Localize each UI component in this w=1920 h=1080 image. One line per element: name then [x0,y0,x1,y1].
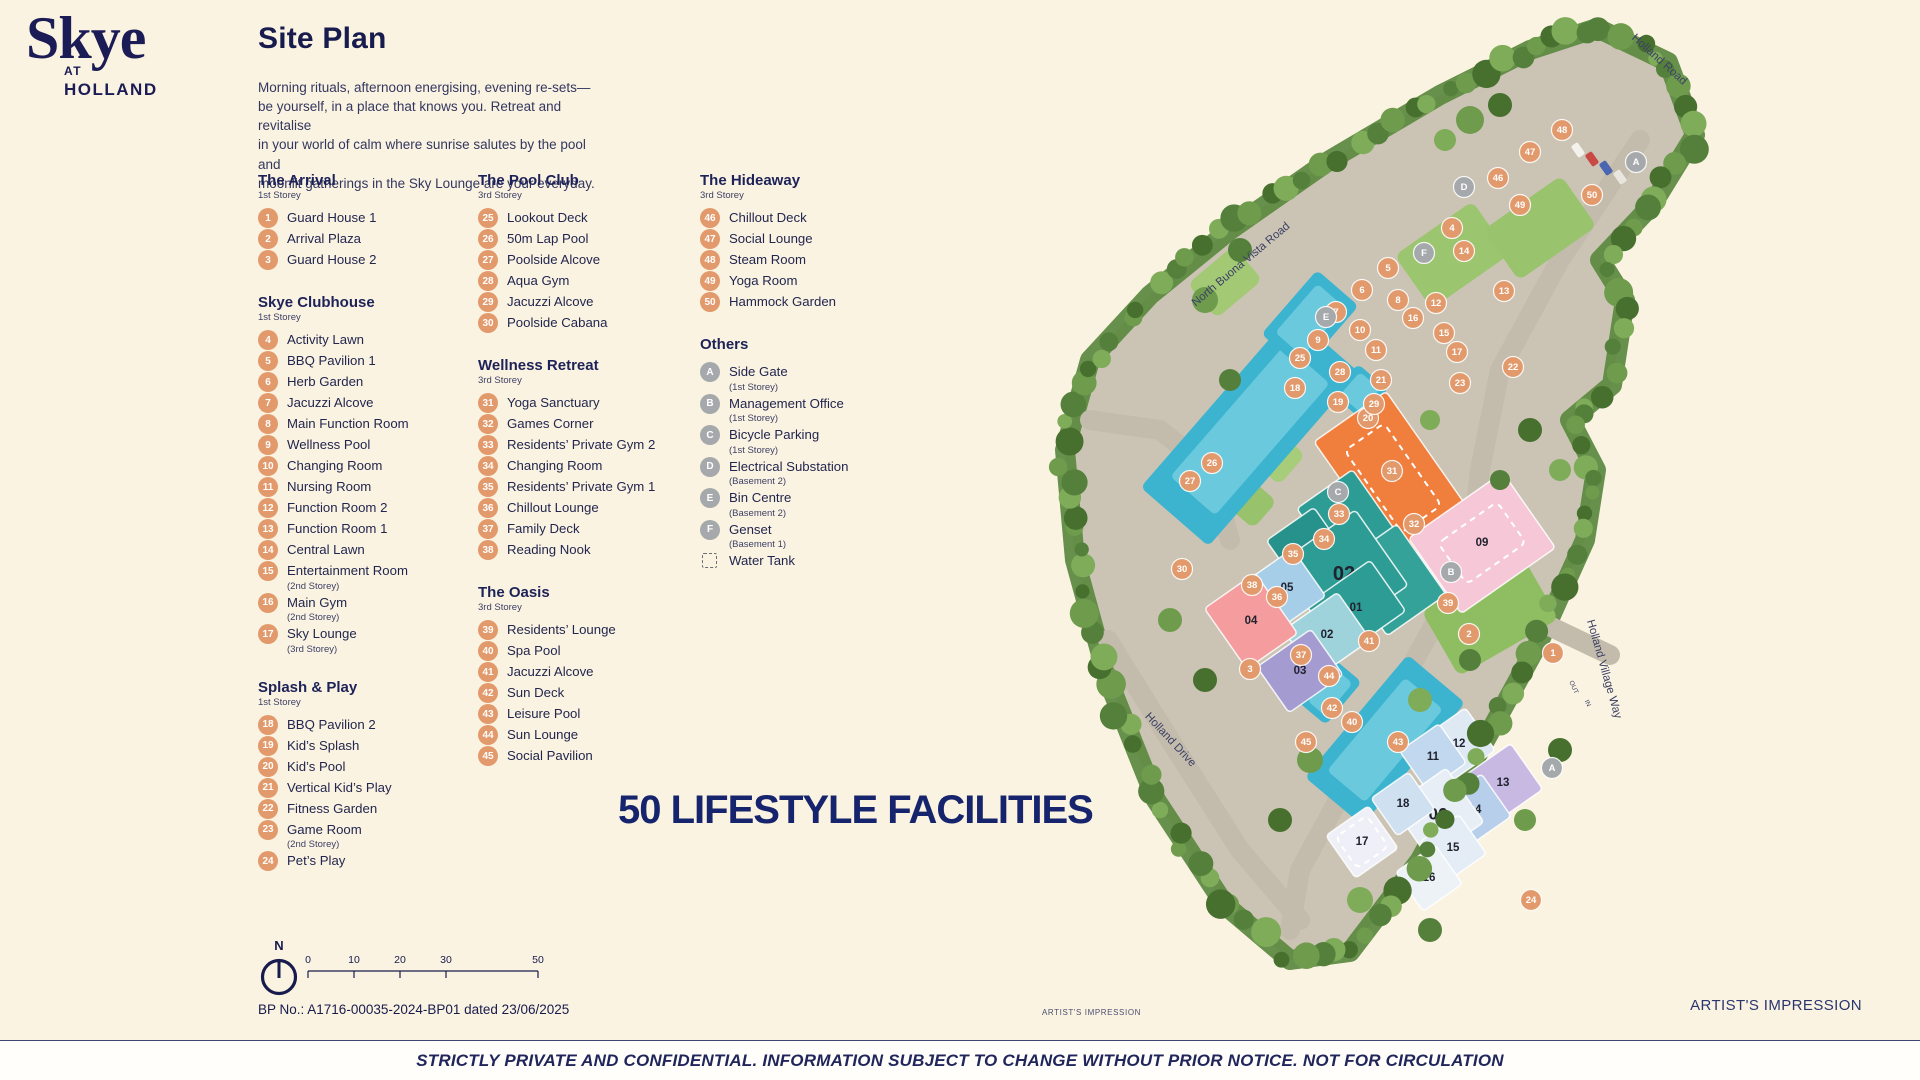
legend-item-label: Jacuzzi Alcove [507,295,594,310]
svg-text:13: 13 [1499,286,1510,297]
legend-item-label: Reading Nook [507,543,591,558]
svg-text:47: 47 [1525,147,1536,158]
legend-marker-badge: 23 [258,820,278,840]
tree [1490,470,1510,490]
tree [1577,22,1598,43]
legend-item-label: Electrical Substation [729,460,848,475]
legend-item: 43Leisure Pool [478,704,692,724]
svg-text:F: F [1421,248,1427,259]
site-marker-number: 14 [1454,241,1475,262]
tree [1577,506,1592,521]
tree [1423,822,1438,837]
tree [1434,129,1456,151]
tree [1467,720,1494,747]
legend-item-label: Entertainment Room [287,564,408,579]
tree [1511,662,1533,684]
legend-item: 16Main Gym(2nd Storey) [258,593,472,624]
svg-text:45: 45 [1301,737,1312,748]
site-marker-number: 23 [1450,373,1471,394]
legend-item: 6Herb Garden [258,372,472,392]
legend-item: 44Sun Lounge [478,725,692,745]
svg-text:33: 33 [1334,509,1345,520]
legend-item: 41Jacuzzi Alcove [478,662,692,682]
svg-text:25: 25 [1295,353,1306,364]
legend-item: 18BBQ Pavilion 2 [258,715,472,735]
tree [1049,458,1067,476]
legend-item-note: (3rd Storey) [287,644,357,655]
site-marker-number: 29 [1364,394,1385,415]
legend-marker-badge: B [700,394,720,414]
tree [1099,332,1118,351]
svg-text:32: 32 [1409,519,1420,530]
legend-section-storey: 3rd Storey [478,190,692,201]
building-label: 11 [1427,751,1440,763]
legend-marker-badge: E [700,488,720,508]
legend-item-note: (1st Storey) [729,413,844,424]
legend-item-label: Herb Garden [287,375,363,390]
brand-wordmark: Skye [26,8,158,68]
legend-item-label: Spa Pool [507,644,561,659]
site-marker-number: 37 [1291,645,1312,666]
site-marker-number: 31 [1382,461,1403,482]
legend-item-label: Changing Room [287,459,382,474]
svg-text:31: 31 [1387,466,1398,477]
svg-text:28: 28 [1335,367,1346,378]
north-label: N [256,938,302,953]
tree [1551,17,1579,45]
site-marker-number: 30 [1172,559,1193,580]
site-marker-number: 39 [1438,593,1459,614]
tree [1419,842,1435,858]
legend-marker-badge: 11 [258,477,278,497]
legend-item: 36Chillout Lounge [478,498,692,518]
legend-item: 37Family Deck [478,519,692,539]
svg-text:21: 21 [1376,375,1387,386]
confidential-text: STRICTLY PRIVATE AND CONFIDENTIAL. INFOR… [416,1051,1503,1071]
confidential-banner: STRICTLY PRIVATE AND CONFIDENTIAL. INFOR… [0,1040,1920,1080]
legend-item: 17Sky Lounge(3rd Storey) [258,624,472,655]
legend-marker-badge: 33 [478,435,498,455]
legend-item: 46Chillout Deck [700,208,914,228]
legend-item: EBin Centre(Basement 2) [700,488,914,519]
legend-marker-badge: A [700,362,720,382]
legend-item-label: Yoga Sanctuary [507,396,600,411]
svg-text:5: 5 [1385,263,1391,274]
legend-marker-badge: 28 [478,271,498,291]
legend-item-label: Poolside Alcove [507,253,600,268]
road-label: IN [1583,699,1592,708]
legend-item: CBicycle Parking(1st Storey) [700,425,914,456]
svg-text:29: 29 [1369,399,1380,410]
site-marker-letter: A [1542,758,1563,779]
svg-text:2: 2 [1466,629,1471,640]
tree [1193,668,1217,692]
legend-item: 33Residents’ Private Gym 2 [478,435,692,455]
legend-marker-badge: 48 [700,250,720,270]
legend-item-label: Sky Lounge [287,627,357,642]
legend-section-storey: 1st Storey [258,190,472,201]
legend-marker-badge: 29 [478,292,498,312]
building-label: 17 [1356,836,1369,848]
legend-item: FGenset(Basement 1) [700,520,914,551]
legend-item: 23Game Room(2nd Storey) [258,820,472,851]
legend-marker-badge: 1 [258,208,278,228]
svg-text:46: 46 [1493,173,1504,184]
tree [1171,841,1186,856]
legend-item: 25Lookout Deck [478,208,692,228]
tree [1566,416,1585,435]
site-marker-number: 50 [1582,185,1603,206]
legend-section-title: Skye Clubhouse [258,294,472,311]
tree [1175,248,1194,267]
tree [1369,904,1392,927]
legend-marker-badge: 42 [478,683,498,703]
svg-text:19: 19 [1333,397,1344,408]
tree [1551,573,1578,600]
legend-item: 19Kid’s Splash [258,736,472,756]
tree [1268,808,1292,832]
legend-item: Water Tank [700,551,914,571]
svg-text:37: 37 [1296,650,1307,661]
tree [1604,245,1623,264]
tree [1418,918,1442,942]
legend-section-title: The Oasis [478,584,692,601]
legend-item-label: Jacuzzi Alcove [507,665,594,680]
legend-item: 45Social Pavilion [478,746,692,766]
legend-marker-badge: 6 [258,372,278,392]
svg-text:C: C [1335,487,1342,498]
tree [1407,856,1432,881]
svg-text:10: 10 [348,954,360,966]
svg-text:48: 48 [1557,125,1568,136]
svg-text:E: E [1323,312,1329,323]
tree [1518,418,1542,442]
legend-item: DElectrical Substation(Basement 2) [700,457,914,488]
legend-item-label: Residents’ Private Gym 1 [507,480,655,495]
legend-section-storey: 3rd Storey [700,190,914,201]
legend-item: 4Activity Lawn [258,330,472,350]
legend-section-title: The Arrival [258,172,472,189]
tree [1549,459,1571,481]
svg-text:A: A [1549,763,1556,774]
site-marker-number: 38 [1242,575,1263,596]
site-marker-number: 35 [1283,544,1304,565]
site-marker-number: 8 [1388,290,1409,311]
tree [1206,889,1235,918]
legend-item-label: Arrival Plaza [287,232,361,247]
legend-item-label: Main Function Room [287,417,409,432]
tree [1572,436,1590,454]
legend-marker-badge: 22 [258,799,278,819]
site-marker-number: 12 [1426,293,1447,314]
legend-item-label: Leisure Pool [507,707,580,722]
legend-marker-badge: 16 [258,593,278,613]
legend-item-label: Residents’ Lounge [507,623,616,638]
site-marker-letter: C [1328,482,1349,503]
tree [1251,917,1281,947]
legend-item-note: (Basement 2) [729,476,848,487]
legend-item-label: Chillout Lounge [507,501,599,516]
tree [1443,779,1466,802]
legend-item-label: Changing Room [507,459,602,474]
legend-item: 20Kid’s Pool [258,757,472,777]
legend-item: 24Pet’s Play [258,851,472,871]
legend-item-label: Function Room 2 [287,501,387,516]
svg-text:16: 16 [1408,313,1419,324]
legend-section: Skye Clubhouse1st Storey4Activity Lawn5B… [258,294,472,655]
svg-text:15: 15 [1439,328,1450,339]
legend-item-label: Bicycle Parking [729,428,819,443]
site-marker-number: 17 [1447,342,1468,363]
site-marker-number: 22 [1503,357,1524,378]
tree [1650,166,1672,188]
legend-marker-badge: 13 [258,519,278,539]
tree [1127,302,1143,318]
legend-marker-badge: 45 [478,746,498,766]
tree [1274,952,1290,968]
site-marker-number: 9 [1308,330,1329,351]
svg-text:D: D [1461,182,1468,193]
legend-marker-badge: 12 [258,498,278,518]
scale-bar: 010203050 [300,952,550,984]
legend-marker-badge: 26 [478,229,498,249]
site-marker-number: 47 [1520,142,1541,163]
legend-item: 22Fitness Garden [258,799,472,819]
legend-item-label: Side Gate [729,365,788,380]
svg-text:3: 3 [1247,664,1252,675]
legend-item: 12Function Room 2 [258,498,472,518]
svg-text:22: 22 [1508,362,1519,373]
svg-text:14: 14 [1459,246,1470,257]
tree [1467,748,1484,765]
legend-item-label: Management Office [729,397,844,412]
legend-item-label: Hammock Garden [729,295,836,310]
legend-item-label: Social Pavilion [507,749,593,764]
legend-marker-badge: C [700,425,720,445]
legend-item-label: Bin Centre [729,491,791,506]
site-plan-map: 0809070610020102050403121113140618151716… [1030,0,1920,1040]
site-marker-number: 40 [1342,712,1363,733]
tree [1408,688,1432,712]
legend-marker-badge: 30 [478,313,498,333]
legend-item-label: Chillout Deck [729,211,807,226]
legend-item-note: (2nd Storey) [287,581,408,592]
legend-marker-badge: 41 [478,662,498,682]
tree [1093,350,1111,368]
tree [1567,545,1587,565]
legend-marker-badge: 15 [258,561,278,581]
svg-text:24: 24 [1526,895,1537,906]
legend-section: Wellness Retreat3rd Storey31Yoga Sanctua… [478,357,692,560]
legend-marker-badge: D [700,457,720,477]
legend-marker-badge: 49 [700,271,720,291]
legend-item: 2650m Lap Pool [478,229,692,249]
svg-text:36: 36 [1272,592,1283,603]
legend-item-label: Activity Lawn [287,333,364,348]
building-label: 09 [1476,537,1489,549]
site-marker-number: 42 [1322,698,1343,719]
legend-item: 29Jacuzzi Alcove [478,292,692,312]
legend-item: 7Jacuzzi Alcove [258,393,472,413]
tree [1489,45,1516,72]
site-marker-letter: D [1454,177,1475,198]
site-marker-number: 1 [1543,643,1564,664]
legend-item-label: Water Tank [729,554,795,569]
tree [1237,201,1261,225]
site-marker-number: 2 [1459,624,1480,645]
legend-section-storey: 3rd Storey [478,375,692,386]
tree [1420,410,1440,430]
site-marker-number: 32 [1404,514,1425,535]
site-marker-number: 19 [1328,392,1349,413]
building-label: 02 [1321,629,1334,641]
building-label: 15 [1447,842,1460,854]
legend-item-label: Main Gym [287,596,347,611]
legend-marker-badge: 44 [478,725,498,745]
legend-item-label: Lookout Deck [507,211,588,226]
legend-item-label: BBQ Pavilion 1 [287,354,376,369]
legend-marker-badge: 31 [478,393,498,413]
artist-impression-large: ARTIST'S IMPRESSION [1690,997,1862,1014]
legend-item-label: Fitness Garden [287,802,377,817]
tree [1525,620,1548,643]
svg-text:39: 39 [1443,598,1454,609]
legend-item: 13Function Room 1 [258,519,472,539]
legend-item: 14Central Lawn [258,540,472,560]
site-marker-number: 6 [1352,280,1373,301]
site-marker-number: 44 [1319,666,1340,687]
svg-text:8: 8 [1395,295,1400,306]
tree [1293,942,1320,969]
tree [1488,93,1512,117]
tree [1061,392,1087,418]
tree [1075,584,1089,598]
legend-section-title: Others [700,336,914,353]
legend-item: 35Residents’ Private Gym 1 [478,477,692,497]
legend-item: 48Steam Room [700,250,914,270]
legend-marker-badge: 32 [478,414,498,434]
legend-section: The Arrival1st Storey1Guard House 12Arri… [258,172,472,270]
site-marker-number: 43 [1388,732,1409,753]
tree [1607,23,1634,50]
building-label: 13 [1497,777,1510,789]
site-marker-number: 41 [1359,631,1380,652]
site-marker-number: 11 [1366,340,1387,361]
legend-section: The Oasis3rd Storey39Residents’ Lounge40… [478,584,692,766]
page-title: Site Plan [258,22,387,56]
svg-text:B: B [1448,567,1455,578]
building-label: 18 [1397,798,1410,810]
legend-item-label: Kid’s Pool [287,760,345,775]
building-label: 03 [1294,665,1307,677]
svg-text:44: 44 [1324,671,1335,682]
tree [1539,595,1556,612]
legend-item-label: Residents’ Private Gym 2 [507,438,655,453]
legend-item-label: Games Corner [507,417,593,432]
legend-marker-badge: 17 [258,624,278,644]
legend-marker-badge: 35 [478,477,498,497]
svg-text:50: 50 [532,954,544,966]
svg-text:12: 12 [1431,298,1442,309]
legend-item: 50Hammock Garden [700,292,914,312]
legend-section-storey: 1st Storey [258,697,472,708]
legend-item: 3Guard House 2 [258,250,472,270]
facilities-headline: 50 LIFESTYLE FACILITIES [618,788,1093,833]
svg-text:18: 18 [1290,383,1301,394]
tree [1591,386,1614,409]
tree [1599,262,1614,277]
site-marker-number: 49 [1510,195,1531,216]
legend-marker-badge: 14 [258,540,278,560]
legend-column-3: The Hideaway3rd Storey46Chillout Deck47S… [700,172,914,595]
legend-item-label: Steam Room [729,253,806,268]
tree [1635,195,1661,221]
tree [1091,644,1118,671]
tree [1061,469,1087,495]
svg-text:26: 26 [1207,458,1218,469]
site-marker-letter: E [1316,307,1337,328]
tree [1100,702,1127,729]
legend-section-title: The Pool Club [478,172,692,189]
tree [1219,369,1241,391]
legend-marker-badge: 47 [700,229,720,249]
tree [1234,910,1254,930]
site-marker-letter: B [1441,562,1462,583]
svg-text:A: A [1633,157,1640,168]
legend-item-label: Wellness Pool [287,438,370,453]
tree [1459,649,1481,671]
road-label: OUT [1567,680,1579,695]
legend-section: The Pool Club3rd Storey25Lookout Deck265… [478,172,692,333]
legend-marker-badge: 38 [478,540,498,560]
legend-item: 47Social Lounge [700,229,914,249]
tree [1071,553,1095,577]
legend-section-title: Splash & Play [258,679,472,696]
site-marker-number: 45 [1296,732,1317,753]
svg-text:43: 43 [1393,737,1404,748]
tree [1171,823,1192,844]
legend-item-label: Aqua Gym [507,274,569,289]
tree [1585,470,1601,486]
site-marker-number: 36 [1267,587,1288,608]
legend-marker-badge: 50 [700,292,720,312]
tree [1064,506,1088,530]
legend-marker-badge: 40 [478,641,498,661]
site-marker-number: 15 [1434,323,1455,344]
legend-marker-badge: 39 [478,620,498,640]
legend-item-note: (1st Storey) [729,445,819,456]
site-marker-number: 24 [1521,890,1542,911]
legend-marker-badge: 20 [258,757,278,777]
legend-item: 8Main Function Room [258,414,472,434]
legend-item-note: (Basement 1) [729,539,786,550]
tree [1326,151,1347,172]
legend-item-label: Sun Lounge [507,728,578,743]
legend-section-storey: 3rd Storey [478,602,692,613]
site-marker-number: 26 [1202,453,1223,474]
tree [1158,608,1182,632]
tree [1585,485,1599,499]
legend-marker-badge: 2 [258,229,278,249]
building-label: 04 [1245,615,1258,627]
tree [1070,599,1099,628]
site-marker-number: 33 [1329,504,1350,525]
legend-item-note: (1st Storey) [729,382,788,393]
legend-item: 34Changing Room [478,456,692,476]
site-marker-letter: F [1414,243,1435,264]
tree [1605,338,1621,354]
legend-item: 28Aqua Gym [478,271,692,291]
